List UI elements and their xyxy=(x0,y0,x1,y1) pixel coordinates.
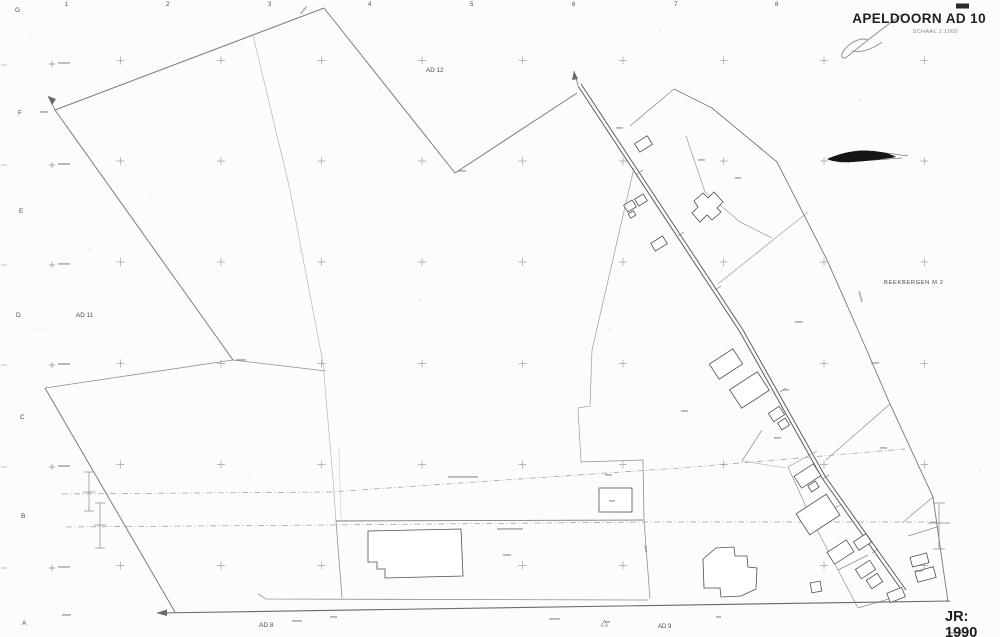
tiny-illegible-label xyxy=(58,566,70,568)
sheet-label-ad-11: AD 11 xyxy=(76,313,93,319)
tiny-illegible-label xyxy=(330,616,337,618)
sheet-label-ad-8: AD 8 xyxy=(259,623,273,630)
grid-letter: C xyxy=(20,415,25,422)
tiny-illegible-label xyxy=(58,363,70,365)
tiny-illegible-label xyxy=(292,620,302,622)
paper-speckle xyxy=(299,249,300,250)
building xyxy=(651,236,668,251)
year-label: JR: 1990 xyxy=(945,609,1000,637)
grid-number: 3 xyxy=(268,2,271,8)
sheet-label-beekbergen-m-2: BEEKBERGEN M 2 xyxy=(884,281,944,287)
building xyxy=(915,567,936,583)
parcel-boundary xyxy=(336,520,643,521)
parcel-line xyxy=(826,404,890,460)
paper-speckle xyxy=(659,29,660,30)
parcel-line xyxy=(908,527,937,536)
parcel-boundary xyxy=(455,93,577,173)
tiny-illegible-label xyxy=(616,127,623,129)
building xyxy=(730,372,770,408)
tiny-illegible-label xyxy=(698,159,705,161)
paper-speckle xyxy=(419,299,420,300)
parcel-boundary xyxy=(336,521,342,598)
street-line xyxy=(158,601,950,613)
faint-parcel-line xyxy=(253,35,336,521)
paper-speckle xyxy=(704,79,705,80)
paper-speckle xyxy=(519,179,520,180)
parcel-line xyxy=(742,430,762,461)
paper-speckle xyxy=(539,599,540,600)
map-sheet: GFEDCBA12345678AD 12AD 11AD 8AD 9BEEKBER… xyxy=(0,0,1000,637)
building xyxy=(703,547,757,597)
parcel-boundary xyxy=(55,110,233,360)
parcel-line xyxy=(258,594,648,600)
pen-mark xyxy=(827,150,896,162)
margin-cross xyxy=(49,61,55,571)
tiny-illegible-label xyxy=(58,163,70,165)
sheet-boundary-line xyxy=(62,449,905,494)
paper-speckle xyxy=(149,199,150,200)
map-canvas xyxy=(0,0,1000,637)
grid-number: 2 xyxy=(166,2,169,8)
paper-speckle xyxy=(119,419,120,420)
building xyxy=(368,529,463,578)
parcel-boundary xyxy=(630,89,674,126)
building xyxy=(634,136,652,152)
building xyxy=(692,192,723,222)
tiny-illegible-label xyxy=(915,570,923,572)
arrowhead xyxy=(156,610,167,617)
tiny-illegible-label xyxy=(448,476,478,478)
tiny-illegible-label xyxy=(880,447,887,449)
paper-speckle xyxy=(249,479,250,480)
tiny-illegible-label xyxy=(503,554,511,556)
grid-letter: B xyxy=(21,514,25,521)
tiny-illegible-label xyxy=(40,111,48,113)
tiny-illegible-label xyxy=(783,389,789,391)
sheet-label-ad-12: AD 12 xyxy=(426,68,444,74)
tiny-illegible-label xyxy=(300,6,307,14)
tiny-illegible-label xyxy=(858,291,863,302)
paper-speckle xyxy=(379,89,380,90)
grid-cross xyxy=(117,57,929,570)
tiny-illegible-label xyxy=(605,621,610,623)
arrowhead xyxy=(572,71,578,80)
arrowhead xyxy=(48,96,56,105)
tiny-illegible-label xyxy=(458,170,466,172)
parcel-boundary xyxy=(233,360,326,371)
tiny-illegible-label xyxy=(871,362,879,364)
tiny-illegible-label xyxy=(605,474,612,476)
tiny-illegible-label xyxy=(58,62,70,64)
grid-letter: A xyxy=(22,621,26,628)
tiny-illegible-label xyxy=(609,500,615,502)
paper-speckle xyxy=(39,329,40,330)
building xyxy=(827,540,854,564)
road-edge xyxy=(578,86,903,592)
paper-speckle xyxy=(609,329,610,330)
parcel-boundary xyxy=(45,360,233,388)
grid-number: 5 xyxy=(470,2,473,8)
tiny-illegible-label xyxy=(681,410,688,412)
paper-speckle xyxy=(89,249,90,250)
building xyxy=(709,349,742,379)
building xyxy=(624,200,637,212)
barcode-mark xyxy=(956,4,969,9)
tiny-illegible-label xyxy=(58,465,70,467)
tiny-illegible-label xyxy=(497,528,523,530)
grid-letter: D xyxy=(16,313,21,320)
grid-number: 8 xyxy=(775,2,778,8)
paper-speckle xyxy=(979,469,980,470)
grid-letter: E xyxy=(19,209,23,216)
building xyxy=(778,418,790,430)
paper-speckle xyxy=(479,419,480,420)
parcel-boundary xyxy=(55,8,324,110)
building xyxy=(628,211,636,218)
road-tick xyxy=(823,475,829,479)
paper-speckle xyxy=(199,559,200,560)
faint-parcel-line xyxy=(339,448,341,519)
grid-letter: G xyxy=(15,8,20,15)
paper-speckle xyxy=(859,99,860,100)
parcel-line xyxy=(788,467,858,608)
page-title: APELDOORN AD 10 xyxy=(852,11,986,26)
tiny-illegible-label xyxy=(549,618,560,620)
parcel-line xyxy=(686,136,772,238)
building xyxy=(635,194,648,206)
paper-speckle xyxy=(759,149,760,150)
grid-number: 6 xyxy=(572,2,575,8)
building xyxy=(853,534,871,551)
building xyxy=(599,488,632,512)
paper-speckle xyxy=(29,39,30,40)
parcel-line xyxy=(644,520,650,599)
map-scale-label: SCHAAL 1:1000 xyxy=(913,29,958,35)
tiny-illegible-label xyxy=(716,616,721,618)
tiny-illegible-label xyxy=(774,437,781,439)
building xyxy=(910,553,929,567)
grid-number: 4 xyxy=(368,2,371,8)
parcel-line xyxy=(578,168,634,462)
parcel-boundary xyxy=(324,8,455,173)
parcel-line xyxy=(718,212,808,284)
tiny-illegible-label xyxy=(236,359,246,361)
tiny-illegible-label xyxy=(62,614,71,616)
building xyxy=(866,573,882,588)
grid-number: 7 xyxy=(674,2,677,8)
grid-letter: F xyxy=(18,111,22,118)
building xyxy=(810,581,822,593)
grid-number: 1 xyxy=(65,2,68,8)
paper-speckle xyxy=(959,299,960,300)
building xyxy=(887,587,906,602)
building xyxy=(796,494,840,535)
sheet-label-ad-9: AD 9 xyxy=(658,624,671,630)
parcel-boundary xyxy=(45,388,175,612)
tiny-illegible-label xyxy=(795,321,803,323)
building xyxy=(768,406,784,421)
parcel-line xyxy=(902,497,933,523)
tiny-illegible-label xyxy=(644,545,647,552)
tiny-illegible-label xyxy=(735,177,741,179)
tiny-illegible-label xyxy=(58,263,70,265)
